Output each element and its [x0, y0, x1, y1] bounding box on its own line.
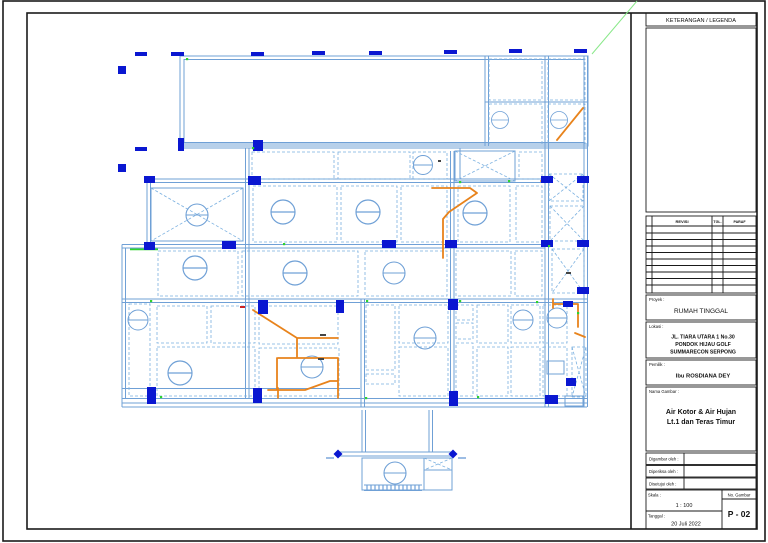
project-label: Proyek : — [649, 297, 664, 302]
floor-drain-icon — [551, 112, 568, 129]
drawing-name-box: Nama Gambar : Air Kotor & Air Hujan Lt.1… — [646, 387, 756, 451]
drawing-sheet: KETERANGAN / LEGENDA REVISI TGL. PARAF P… — [0, 0, 768, 543]
sheet-number-value: P - 02 — [728, 509, 751, 519]
approved-by-label: Disetujui oleh : — [649, 482, 676, 487]
sheet-number-label: No. Gambar — [728, 493, 751, 498]
floor-drain-icon — [547, 308, 567, 328]
floor-drain-symbols — [128, 112, 568, 485]
drawing-name-label: Nama Gambar : — [649, 389, 679, 394]
floor-drain-icon — [168, 361, 192, 385]
walls — [122, 56, 588, 407]
hatched-areas — [151, 151, 586, 397]
drawn-by-label: Digambar oleh : — [649, 457, 679, 462]
project-box: Proyek : RUMAH TINGGAL — [646, 295, 756, 320]
title-block: KETERANGAN / LEGENDA REVISI TGL. PARAF P… — [646, 13, 756, 529]
location-line-2: PONDOK HIJAU GOLF — [675, 342, 731, 348]
drawing-name-line-2: Lt.1 dan Teras Timur — [667, 419, 735, 426]
floor-drain-icon — [414, 327, 436, 349]
floor-drain-icon — [513, 310, 533, 330]
drawing-name-line-1: Air Kotor & Air Hujan — [666, 409, 736, 416]
signature-rows: Digambar oleh : Diperiksa oleh : Disetuj… — [646, 453, 756, 489]
date-value: 20 Juli 2022 — [671, 522, 701, 528]
floor-drain-icon — [186, 204, 208, 226]
floor-drain-icon — [356, 200, 380, 224]
initial-col-header: PARAF — [733, 220, 746, 224]
scale-value: 1 : 100 — [676, 503, 693, 509]
floor-drain-icon — [271, 200, 295, 224]
cad-canvas: KETERANGAN / LEGENDA REVISI TGL. PARAF P… — [0, 0, 768, 543]
floor-drain-icon — [128, 310, 148, 330]
location-line-1: JL. TIARA UTARA 1 No.30 — [671, 335, 735, 341]
floor-drain-icon — [283, 261, 307, 285]
project-value: RUMAH TINGGAL — [674, 308, 728, 315]
terrace-east — [326, 410, 466, 491]
floor-drain-icon — [492, 112, 509, 129]
floor-plan — [118, 1, 637, 491]
revision-col-header: REVISI — [675, 219, 688, 224]
legend-title: KETERANGAN / LEGENDA — [666, 18, 736, 24]
date-col-header: TGL. — [713, 220, 721, 224]
scale-date-number-block: Skala : 1 : 100 Tanggal : 20 Juli 2022 N… — [646, 490, 756, 529]
location-line-3: SUMMARECON SERPONG — [670, 350, 736, 356]
floor-drain-icon — [383, 262, 405, 284]
legend-box: KETERANGAN / LEGENDA — [646, 13, 756, 212]
date-label: Tanggal : — [648, 514, 665, 519]
room-grid — [129, 152, 567, 396]
structural-columns — [118, 49, 589, 406]
leader-line-green — [130, 1, 637, 249]
revision-table: REVISI TGL. PARAF — [646, 216, 756, 293]
owner-value: Ibu ROSDIANA DEY — [676, 374, 731, 380]
floor-drain-icon — [183, 256, 207, 280]
floor-drain-icon — [463, 201, 487, 225]
owner-box: Pemilik : Ibu ROSDIANA DEY — [646, 360, 756, 385]
pipes-orange — [253, 108, 585, 398]
checked-by-label: Diperiksa oleh : — [649, 469, 678, 474]
canopy-outline — [180, 56, 588, 179]
location-box: Lokasi : JL. TIARA UTARA 1 No.30 PONDOK … — [646, 322, 756, 358]
location-label: Lokasi : — [649, 324, 663, 329]
floor-drain-icon — [414, 156, 433, 175]
floor-drain-icon — [384, 462, 406, 484]
scale-label: Skala : — [648, 493, 661, 498]
owner-label: Pemilik : — [649, 362, 665, 367]
